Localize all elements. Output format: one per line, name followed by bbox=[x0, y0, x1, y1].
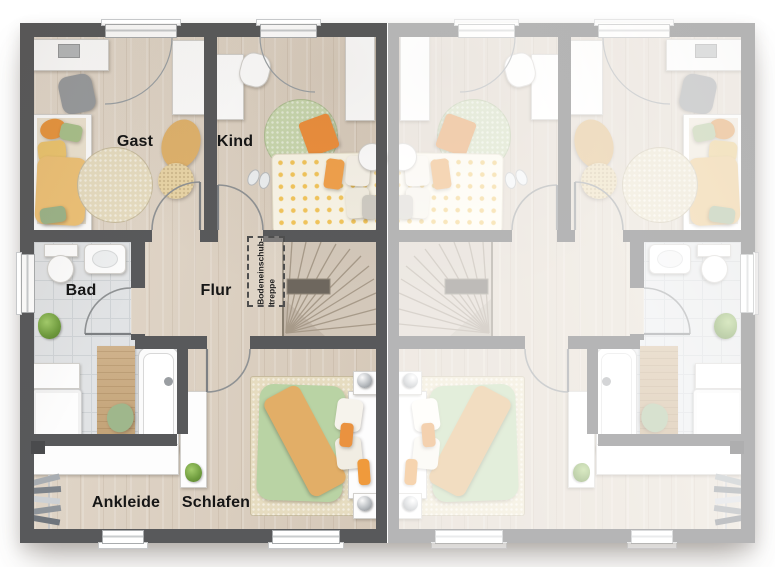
wardrobe-row bbox=[596, 444, 743, 475]
bath-shelf bbox=[695, 363, 743, 389]
faucet-icon bbox=[602, 377, 611, 386]
pouf bbox=[158, 163, 194, 199]
lamp-icon bbox=[403, 373, 418, 388]
bath-shelf bbox=[32, 363, 80, 389]
pillow bbox=[708, 205, 736, 224]
wall bbox=[388, 23, 755, 37]
wall bbox=[200, 230, 218, 242]
faucet-icon bbox=[164, 377, 173, 386]
window bbox=[458, 24, 515, 38]
lamp-icon bbox=[403, 496, 418, 511]
pillow bbox=[397, 195, 413, 219]
clothes-rail bbox=[725, 475, 727, 533]
pillow bbox=[421, 422, 436, 447]
pillow bbox=[404, 459, 418, 486]
window bbox=[740, 254, 754, 313]
room-label-schlafen: Schlafen bbox=[182, 494, 250, 512]
wall bbox=[204, 23, 217, 242]
floor-plan-canvas: Bodeneinschub- treppe Gast Kind Bad Flur… bbox=[0, 0, 775, 567]
clothes-rail bbox=[48, 475, 50, 533]
wall bbox=[623, 230, 755, 242]
wall bbox=[587, 341, 598, 434]
wardrobe bbox=[400, 36, 430, 121]
chimney-block bbox=[31, 441, 45, 454]
lamp-icon bbox=[357, 373, 372, 388]
sink-bowl bbox=[657, 250, 683, 268]
window bbox=[260, 24, 317, 38]
wardrobe bbox=[569, 40, 603, 115]
chimney-block bbox=[730, 441, 744, 454]
window bbox=[105, 24, 177, 38]
shower bbox=[693, 389, 743, 438]
laptop-icon bbox=[695, 44, 717, 58]
pillow bbox=[357, 459, 371, 486]
wardrobe-row bbox=[32, 444, 179, 475]
shower bbox=[32, 389, 82, 438]
wall bbox=[557, 230, 575, 242]
room-label-bad: Bad bbox=[66, 282, 97, 300]
wall bbox=[568, 336, 640, 349]
attic-hatch-line1: Bodeneinschub- bbox=[255, 238, 266, 305]
pouf bbox=[581, 163, 617, 199]
party-wall bbox=[376, 23, 387, 543]
lamp-icon bbox=[357, 496, 372, 511]
window bbox=[631, 530, 673, 544]
round-rug bbox=[622, 147, 698, 223]
wall bbox=[131, 242, 145, 288]
window bbox=[272, 530, 340, 544]
wall bbox=[20, 230, 152, 242]
attic-hatch-label: Bodeneinschub- treppe bbox=[255, 238, 276, 305]
plant-icon bbox=[38, 313, 61, 339]
wall bbox=[250, 336, 376, 349]
pillow bbox=[339, 422, 354, 447]
attic-hatch-box: Bodeneinschub- treppe bbox=[247, 236, 285, 307]
plant-icon bbox=[714, 313, 737, 339]
toilet bbox=[701, 255, 728, 283]
plant-icon bbox=[573, 463, 590, 482]
room-label-gast: Gast bbox=[117, 133, 153, 151]
party-wall bbox=[388, 23, 399, 543]
window bbox=[598, 24, 670, 38]
room-label-kind: Kind bbox=[217, 133, 253, 151]
wall bbox=[177, 341, 188, 434]
wall bbox=[558, 23, 571, 242]
attic-hatch-line2: treppe bbox=[266, 238, 277, 305]
wall bbox=[630, 242, 644, 288]
duplex-floor-plan: Bodeneinschub- treppe Gast Kind Bad Flur… bbox=[20, 23, 755, 543]
window bbox=[21, 254, 35, 313]
window bbox=[102, 530, 144, 544]
toilet bbox=[47, 255, 74, 283]
round-rug bbox=[77, 147, 153, 223]
window bbox=[435, 530, 503, 544]
wardrobe bbox=[345, 36, 375, 121]
unit-right: Bodeneinschub- treppe Gast Kind Bad Flur… bbox=[388, 23, 755, 543]
wall bbox=[399, 230, 512, 242]
unit-left: Bodeneinschub- treppe Gast Kind Bad Flur… bbox=[20, 23, 387, 543]
wall bbox=[135, 336, 207, 349]
wall bbox=[399, 336, 525, 349]
room-label-ankleide: Ankleide bbox=[92, 494, 160, 512]
room-label-flur: Flur bbox=[200, 282, 231, 300]
plant-icon bbox=[185, 463, 202, 482]
laptop-icon bbox=[58, 44, 80, 58]
sink-bowl bbox=[92, 250, 118, 268]
wardrobe bbox=[172, 40, 206, 115]
